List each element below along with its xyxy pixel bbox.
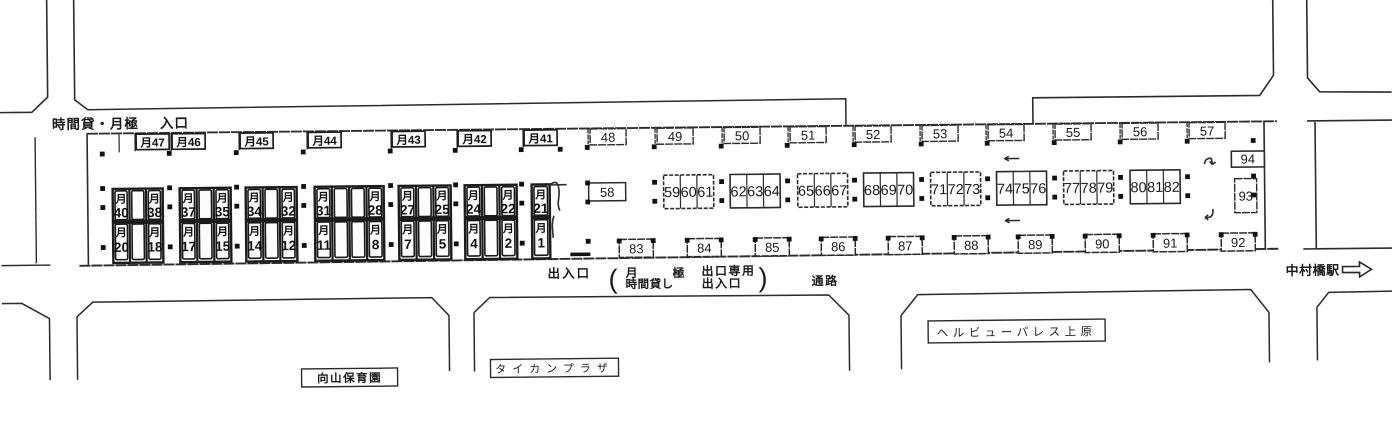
- svg-text:月: 月: [435, 189, 447, 202]
- svg-text:向山保育園: 向山保育園: [317, 371, 382, 386]
- svg-text:月47: 月47: [139, 136, 164, 149]
- svg-text:月: 月: [401, 223, 413, 236]
- svg-text:月: 月: [282, 191, 294, 204]
- svg-text:月: 月: [182, 226, 194, 239]
- svg-text:27: 27: [400, 202, 415, 217]
- svg-text:94: 94: [1241, 151, 1256, 166]
- svg-text:55: 55: [1066, 125, 1081, 140]
- svg-text:月: 月: [502, 222, 514, 235]
- svg-text:68: 68: [864, 183, 880, 199]
- svg-text:92: 92: [1231, 235, 1246, 250]
- svg-text:14: 14: [247, 238, 263, 253]
- svg-text:月: 月: [436, 223, 448, 236]
- svg-text:月: 月: [216, 225, 228, 238]
- svg-text:51: 51: [801, 128, 816, 143]
- svg-text:月45: 月45: [243, 135, 269, 148]
- svg-text:月46: 月46: [175, 136, 200, 149]
- svg-text:56: 56: [1133, 124, 1148, 139]
- svg-text:75: 75: [1014, 181, 1030, 197]
- svg-text:40: 40: [114, 205, 129, 220]
- svg-text:月: 月: [401, 190, 413, 203]
- svg-text:93: 93: [1238, 189, 1253, 204]
- svg-text:62: 62: [730, 184, 746, 200]
- svg-text:28: 28: [368, 203, 384, 218]
- svg-text:2: 2: [505, 236, 513, 251]
- svg-text:88: 88: [964, 238, 979, 253]
- svg-text:月42: 月42: [461, 133, 486, 146]
- svg-text:84: 84: [697, 240, 712, 255]
- svg-text:52: 52: [866, 127, 881, 142]
- svg-text:タイカンプラザ: タイカンプラザ: [495, 362, 614, 376]
- svg-text:38: 38: [147, 205, 163, 220]
- svg-text:月: 月: [317, 191, 329, 204]
- svg-text:中村橋駅: 中村橋駅: [1285, 263, 1340, 279]
- svg-text:月: 月: [624, 266, 637, 280]
- svg-text:77: 77: [1064, 181, 1080, 197]
- svg-text:17: 17: [181, 239, 196, 254]
- svg-text:20: 20: [114, 240, 129, 255]
- svg-text:月: 月: [369, 190, 381, 203]
- svg-text:月: 月: [148, 192, 160, 205]
- svg-text:65: 65: [798, 184, 814, 200]
- svg-text:月: 月: [248, 225, 260, 238]
- svg-text:月: 月: [148, 226, 160, 239]
- svg-text:8: 8: [372, 237, 380, 252]
- svg-text:48: 48: [601, 130, 616, 145]
- svg-text:ヘルビューパレス上原: ヘルビューパレス上原: [937, 325, 1097, 340]
- svg-text:月: 月: [467, 189, 479, 202]
- svg-text:月: 月: [114, 193, 126, 206]
- svg-text:74: 74: [997, 182, 1013, 198]
- svg-text:出入口: 出入口: [547, 265, 591, 280]
- svg-text:70: 70: [897, 183, 913, 199]
- svg-text:月44: 月44: [311, 135, 337, 148]
- svg-text:66: 66: [815, 183, 831, 199]
- svg-text:71: 71: [931, 182, 947, 198]
- svg-text:86: 86: [831, 239, 846, 254]
- svg-text:60: 60: [681, 185, 697, 201]
- svg-text:37: 37: [181, 205, 196, 220]
- svg-text:極: 極: [672, 265, 684, 280]
- svg-text:57: 57: [1200, 123, 1215, 138]
- svg-text:67: 67: [831, 183, 847, 199]
- svg-text:34: 34: [247, 204, 263, 219]
- svg-text:76: 76: [1030, 181, 1046, 197]
- svg-text:月43: 月43: [395, 134, 420, 147]
- svg-text:月: 月: [248, 191, 260, 204]
- svg-text:85: 85: [765, 240, 780, 255]
- svg-text:32: 32: [281, 204, 296, 219]
- svg-text:79: 79: [1097, 180, 1113, 196]
- svg-text:24: 24: [466, 202, 482, 217]
- svg-text:7: 7: [404, 237, 412, 252]
- svg-text:80: 80: [1130, 180, 1146, 196]
- svg-text:月: 月: [182, 192, 194, 205]
- svg-text:): ): [758, 263, 767, 293]
- svg-text:87: 87: [898, 238, 913, 253]
- svg-text:63: 63: [747, 184, 763, 200]
- svg-text:89: 89: [1028, 237, 1043, 252]
- svg-text:72: 72: [948, 182, 964, 198]
- svg-text:90: 90: [1095, 236, 1110, 251]
- svg-text:61: 61: [697, 185, 713, 201]
- svg-text:69: 69: [881, 183, 897, 199]
- svg-text:64: 64: [764, 184, 780, 200]
- svg-text:22: 22: [501, 201, 516, 216]
- svg-text:時間貸し: 時間貸し: [626, 277, 674, 292]
- svg-text:月: 月: [369, 224, 381, 237]
- svg-text:通路: 通路: [812, 273, 839, 288]
- svg-text:18: 18: [147, 239, 163, 254]
- svg-text:12: 12: [281, 238, 296, 253]
- svg-text:91: 91: [1163, 236, 1178, 251]
- svg-text:78: 78: [1081, 181, 1097, 197]
- svg-text:5: 5: [439, 236, 447, 251]
- svg-text:59: 59: [664, 185, 680, 201]
- svg-text:50: 50: [735, 128, 750, 143]
- svg-text:73: 73: [964, 182, 980, 198]
- svg-text:月: 月: [216, 192, 228, 205]
- svg-text:時間貸・月極: 時間貸・月極: [52, 115, 139, 132]
- svg-text:25: 25: [435, 202, 451, 217]
- svg-text:月: 月: [534, 188, 546, 201]
- svg-text:月41: 月41: [527, 132, 553, 145]
- svg-text:月: 月: [501, 189, 513, 202]
- svg-text:月: 月: [467, 223, 479, 236]
- svg-text:53: 53: [933, 126, 948, 141]
- svg-text:49: 49: [668, 129, 683, 144]
- svg-text:4: 4: [470, 236, 478, 251]
- svg-text:31: 31: [316, 203, 332, 218]
- svg-text:月: 月: [282, 225, 294, 238]
- svg-text:月: 月: [115, 226, 127, 239]
- svg-text:58: 58: [600, 185, 615, 200]
- svg-text:入口: 入口: [160, 116, 189, 131]
- svg-text:月: 月: [317, 224, 329, 237]
- svg-text:21: 21: [533, 201, 549, 216]
- svg-text:35: 35: [215, 204, 231, 219]
- svg-text:54: 54: [999, 126, 1014, 141]
- svg-text:11: 11: [317, 238, 332, 253]
- svg-text:(: (: [608, 264, 617, 294]
- svg-text:出入口: 出入口: [702, 275, 743, 290]
- svg-text:月: 月: [534, 222, 546, 235]
- svg-text:1: 1: [537, 235, 545, 250]
- svg-text:15: 15: [215, 239, 231, 254]
- svg-text:82: 82: [1164, 180, 1180, 196]
- svg-text:83: 83: [629, 241, 644, 256]
- svg-text:81: 81: [1147, 180, 1163, 196]
